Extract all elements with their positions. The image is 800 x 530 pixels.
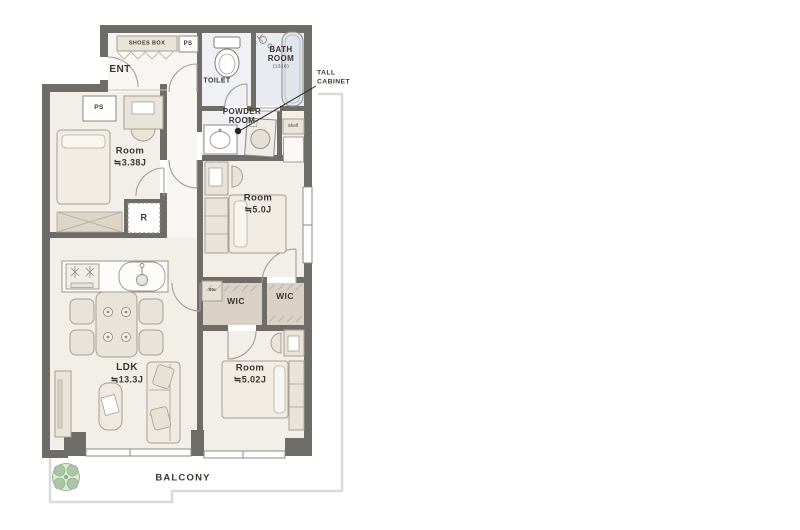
tall-cabinet-label-line1: TALL [317,71,335,78]
toilet-icon [214,37,240,77]
toilet-label: TOILET [203,78,230,85]
closet-hatch-icon [57,212,122,232]
tv-board-icon [55,371,71,437]
floorplan-graphic [0,0,800,530]
dining-chair-icon [70,330,94,355]
bedroom2-size-label: ≒5.0J [244,206,271,215]
bedroom3-name-label: Room [236,363,265,373]
cabinet-bedroom2-icon [205,198,228,253]
bath-label-line1: BATH [269,46,292,54]
shelf-label: Shelf [288,124,298,129]
sofa-icon [147,362,180,443]
bath-label-line2: ROOM [268,55,295,63]
plant-icon [53,464,80,491]
bedroom3-size-label: ≒5.02J [234,376,266,385]
bedroom1-name-label: Room [116,146,145,156]
tall-cabinet-dot [235,128,241,134]
dining-chair-icon [70,299,94,324]
bedroom2-name-label: Room [244,193,273,203]
shelf-bedroom3-icon [289,361,304,430]
ent-label: ENT [109,65,130,75]
wic-left-label: WIC [227,297,245,306]
ldk-size-label: ≒13.3J [111,376,143,385]
window-balcony-left [86,449,191,456]
ps-entry-label: PS [184,41,193,47]
stove-icon [66,264,99,289]
bed-bedroom1-icon [57,130,110,204]
dining-chair-icon [139,330,163,355]
vanity-icon [204,125,237,154]
shoes-box-label: SHOES BOX [129,41,165,47]
tall-cabinet-label-line2: CABINET [317,80,350,87]
linen-cabinet-icon [284,137,304,162]
powder-label-line1: POWDER [223,108,261,116]
dining-table-icon [96,292,137,357]
floorplan-canvas: SHOES BOX PS ENT TOILET BATH ROOM (1316)… [0,0,800,530]
window-balcony-right [204,451,285,458]
bedroom1-size-label: ≒3.38J [114,159,146,168]
bath-size-label: (1316) [273,66,289,71]
desk-bedroom3-icon [271,330,304,356]
fridge-label: R [141,214,148,223]
dining-chair-icon [139,299,163,324]
powder-label-line2: ROOM [229,117,256,125]
sink-icon [119,262,165,291]
wic-right-label: WIC [276,292,294,301]
ldk-name-label: LDK [116,363,138,373]
ps-bedroom1-label: PS [94,105,103,112]
coffee-table-icon [99,383,122,430]
balcony-label: BALCONY [155,473,210,483]
sto-label: Sto [208,288,215,293]
